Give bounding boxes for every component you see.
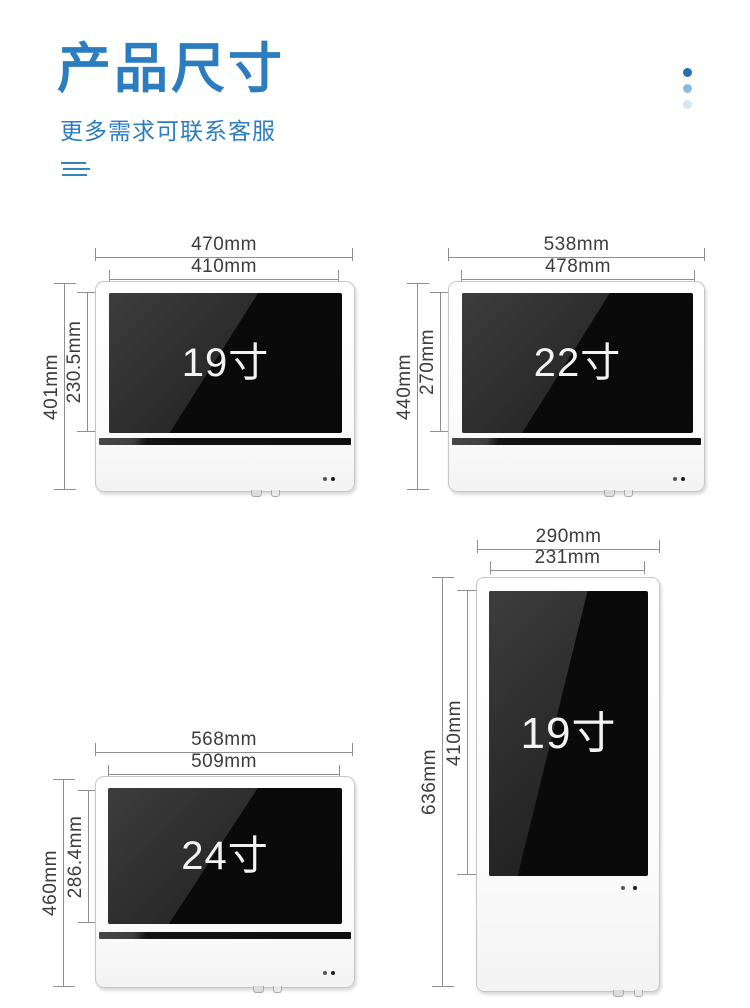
device-foot bbox=[253, 986, 264, 993]
screen-height-label: 410mm bbox=[445, 668, 465, 798]
dim-line bbox=[490, 570, 645, 571]
device-screen: 22寸 bbox=[462, 293, 693, 433]
screen-width-dim: 410mm bbox=[109, 258, 339, 280]
outer-height-label: 460mm bbox=[41, 818, 61, 948]
device-foot bbox=[271, 490, 280, 497]
screen-height-label: 270mm bbox=[418, 297, 438, 427]
dim-line bbox=[109, 279, 339, 280]
dim-line bbox=[467, 590, 468, 875]
outer-width-dim: 538mm bbox=[448, 236, 705, 258]
device-frame: 24寸 bbox=[95, 776, 355, 988]
page-subtitle: 更多需求可联系客服 bbox=[60, 118, 276, 146]
outer-height-label: 440mm bbox=[395, 322, 415, 452]
device-foot bbox=[613, 990, 624, 997]
dim-line bbox=[88, 790, 89, 923]
screen-width-dim: 231mm bbox=[490, 549, 645, 571]
dim-line bbox=[440, 292, 441, 432]
screen-width-dim: 509mm bbox=[108, 753, 340, 775]
device-foot bbox=[604, 490, 615, 497]
screen-size-label: 24寸 bbox=[181, 836, 269, 876]
indicator-dots bbox=[323, 477, 335, 481]
screen-width-dim: 478mm bbox=[461, 258, 695, 280]
outer-width-label: 568mm bbox=[95, 731, 353, 748]
vertical-dots-icon bbox=[683, 68, 692, 109]
speaker-stripe bbox=[99, 438, 351, 445]
three-lines-icon bbox=[60, 162, 90, 176]
indicator-dots bbox=[323, 971, 335, 975]
outer-width-label: 470mm bbox=[95, 236, 353, 253]
device-frame: 19寸 bbox=[95, 281, 355, 492]
speaker-stripe bbox=[99, 932, 351, 939]
device-foot bbox=[251, 490, 262, 497]
device-screen: 24寸 bbox=[108, 788, 342, 924]
screen-width-label: 231mm bbox=[490, 549, 645, 566]
dim-line bbox=[461, 279, 695, 280]
screen-width-label: 410mm bbox=[109, 258, 339, 275]
dim-line bbox=[442, 577, 443, 987]
screen-size-label: 19寸 bbox=[521, 712, 617, 756]
device-screen: 19寸 bbox=[109, 293, 342, 433]
dim-line bbox=[87, 292, 88, 432]
screen-size-label: 22寸 bbox=[534, 343, 622, 383]
product-dimensions-page: 产品尺寸 更多需求可联系客服 470mm 410mm 401mm 230.5mm… bbox=[0, 0, 750, 1008]
outer-width-dim: 470mm bbox=[95, 236, 353, 258]
page-title: 产品尺寸 bbox=[57, 40, 285, 99]
indicator-dots bbox=[673, 477, 685, 481]
device-frame: 19寸 bbox=[476, 577, 660, 992]
screen-size-label: 19寸 bbox=[182, 343, 270, 383]
outer-height-label: 401mm bbox=[42, 322, 62, 452]
outer-height-label: 636mm bbox=[420, 717, 440, 847]
screen-height-label: 286.4mm bbox=[66, 792, 86, 922]
dim-line bbox=[63, 779, 64, 987]
device-screen: 19寸 bbox=[489, 591, 648, 876]
outer-width-label: 538mm bbox=[448, 236, 705, 253]
dim-line bbox=[108, 774, 340, 775]
outer-width-label: 290mm bbox=[477, 528, 660, 545]
indicator-dots bbox=[621, 886, 637, 890]
screen-width-label: 478mm bbox=[461, 258, 695, 275]
outer-width-dim: 568mm bbox=[95, 731, 353, 753]
speaker-stripe bbox=[452, 438, 701, 445]
device-foot bbox=[273, 986, 282, 993]
device-foot bbox=[634, 990, 643, 997]
device-frame: 22寸 bbox=[448, 281, 705, 492]
screen-height-label: 230.5mm bbox=[65, 297, 85, 427]
device-foot bbox=[624, 490, 633, 497]
screen-width-label: 509mm bbox=[108, 753, 340, 770]
